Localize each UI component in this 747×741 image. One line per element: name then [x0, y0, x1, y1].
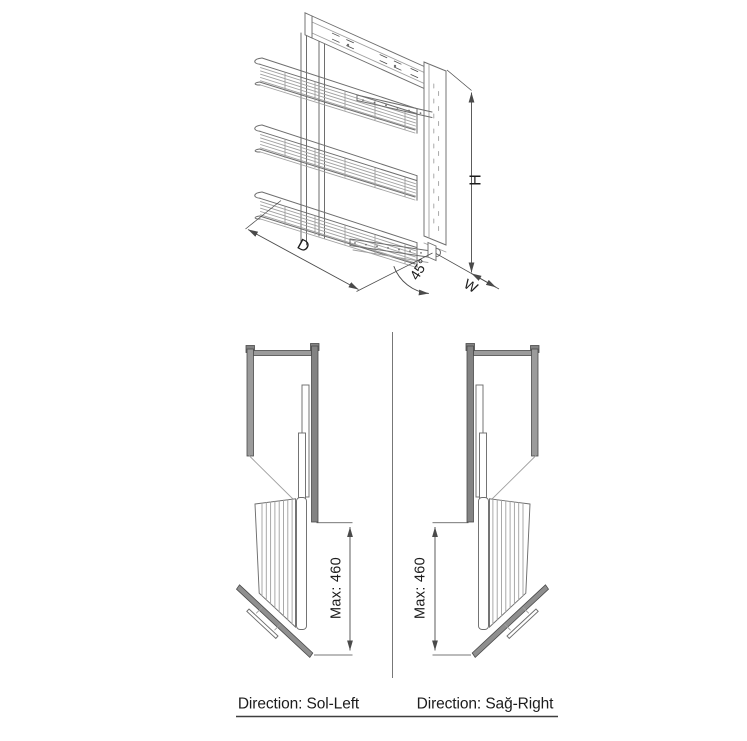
slide-rail-inner: [299, 433, 306, 499]
dimension-height: H: [447, 70, 485, 273]
wall-edge-line: [250, 456, 298, 504]
wire-baskets: [255, 58, 417, 267]
dim-label-d: D: [294, 236, 312, 256]
cabinet-top-wall: [253, 351, 312, 356]
dim-label-w: W: [461, 275, 481, 296]
dimension-depth: D: [246, 201, 433, 292]
dim-label-angle: 45°: [406, 256, 431, 282]
caption-direction-left: Direction: Sol-Left: [238, 696, 360, 713]
technical-drawing-page: H D 45° W: [0, 0, 747, 741]
caption-direction-right: Direction: Sağ-Right: [417, 696, 554, 713]
drawing-canvas: H D 45° W: [0, 0, 747, 741]
max-460-label-left: Max: 460: [329, 557, 345, 619]
cabinet-side-wall: [247, 349, 254, 456]
dimension-width: W: [436, 254, 499, 297]
max-460-label-right: Max: 460: [413, 557, 429, 619]
plan-view-right: [433, 344, 549, 658]
pull-out-carriage: [297, 498, 307, 630]
isometric-view: H D 45° W: [246, 13, 500, 296]
cabinet-front-wall: [312, 346, 319, 522]
rear-side-panel: [424, 62, 446, 257]
top-mounting-rail: [305, 13, 439, 95]
dim-label-h: H: [468, 174, 485, 186]
